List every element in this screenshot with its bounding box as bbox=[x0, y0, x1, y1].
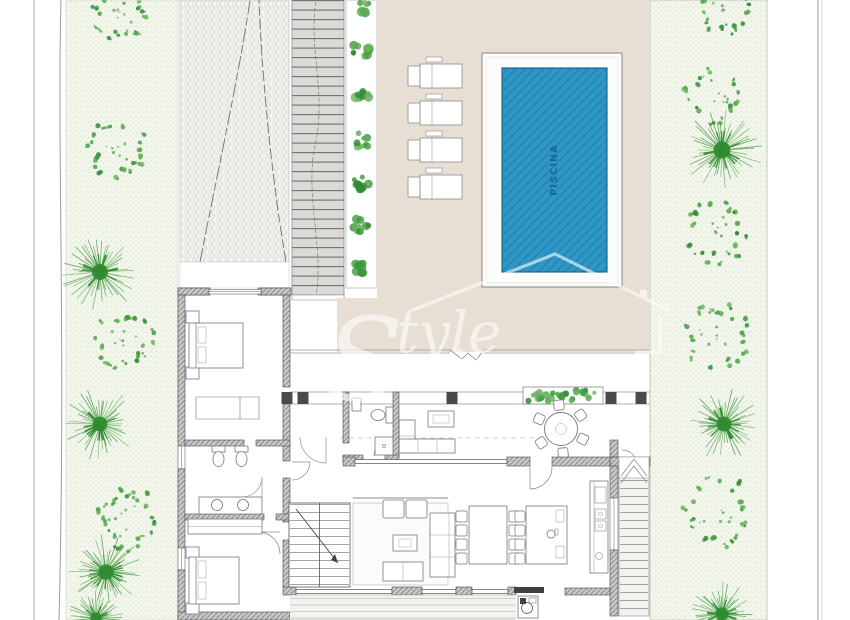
toilet bbox=[213, 452, 224, 467]
side-staircase bbox=[619, 457, 649, 616]
bar-stool bbox=[515, 511, 525, 522]
wing-east-wall-upper bbox=[283, 295, 290, 387]
wing-east-wall-mid1 bbox=[283, 404, 290, 461]
sofa bbox=[430, 513, 455, 577]
west-wall-upper bbox=[178, 295, 185, 446]
living-north-glass bbox=[355, 460, 507, 464]
shower bbox=[375, 437, 393, 455]
south-glass-2 bbox=[422, 590, 456, 594]
bbq-counter bbox=[514, 587, 544, 593]
west-wall-middle bbox=[178, 469, 185, 548]
nightstand bbox=[186, 547, 199, 558]
living-north-wall-right bbox=[552, 457, 610, 466]
double-bed bbox=[189, 323, 243, 368]
living-room bbox=[353, 498, 455, 585]
dining-chair bbox=[456, 539, 467, 550]
patio-chair bbox=[553, 400, 564, 411]
pool-label: PISCINA bbox=[549, 144, 560, 196]
dining-table bbox=[469, 506, 507, 564]
watermark-chimney bbox=[640, 290, 647, 297]
dining-area bbox=[456, 506, 520, 564]
south-pier1 bbox=[283, 587, 296, 595]
living-north-pier2 bbox=[507, 457, 530, 466]
porch-column bbox=[282, 392, 293, 404]
outdoor-dining-table bbox=[545, 413, 578, 446]
bath1-north-wall-right bbox=[256, 440, 290, 446]
bar-stool bbox=[515, 525, 525, 536]
east-wall-lower bbox=[610, 550, 618, 616]
planter-strip bbox=[346, 0, 377, 288]
porch-column bbox=[606, 392, 617, 404]
pool-area: PISCINA bbox=[482, 53, 622, 287]
bbq-burner bbox=[522, 603, 533, 614]
bedroom1-north-wall-right bbox=[261, 288, 291, 295]
dining-chair bbox=[456, 511, 467, 522]
bar-stool bbox=[515, 553, 525, 564]
vanity-counter bbox=[199, 497, 262, 514]
floor-plan-canvas: PISCINA bbox=[0, 0, 850, 620]
bath1-south-wall-right bbox=[276, 514, 290, 520]
bar-stool bbox=[515, 539, 525, 550]
watermark-subtitle: PROPERTIES bbox=[428, 357, 518, 367]
driveway bbox=[178, 0, 290, 295]
rear-deck bbox=[290, 595, 516, 620]
kitchen-island bbox=[526, 506, 567, 564]
double-bed bbox=[189, 557, 239, 604]
nightstand bbox=[186, 367, 199, 379]
driveway-apron bbox=[180, 262, 289, 288]
coffee-table bbox=[393, 535, 417, 551]
east-wall-upper bbox=[610, 466, 618, 498]
south-glass-1 bbox=[296, 590, 392, 594]
south-wall-seg2 bbox=[456, 587, 472, 595]
south-wall-right bbox=[565, 588, 610, 595]
left-garden-strip bbox=[62, 0, 178, 620]
armchair bbox=[383, 500, 404, 518]
nightstand bbox=[186, 603, 199, 614]
porch-column bbox=[636, 392, 647, 404]
stair-landing bbox=[619, 457, 649, 478]
dining-chair bbox=[456, 525, 467, 536]
bath1-north-wall bbox=[185, 440, 244, 446]
bedroom1-north-wall-left bbox=[178, 288, 209, 295]
front-walkway bbox=[292, 0, 344, 300]
interior-staircase bbox=[289, 503, 350, 587]
south-wall-seg1 bbox=[392, 587, 422, 595]
porch-column bbox=[298, 392, 309, 404]
outdoor-sofa-bottom bbox=[399, 439, 455, 453]
porch-column bbox=[447, 392, 458, 404]
dining-chair bbox=[456, 553, 467, 564]
armchair bbox=[406, 500, 427, 518]
site-plan-drawing: PISCINA bbox=[0, 0, 850, 620]
east-wall-top bbox=[610, 440, 618, 457]
living-north-pier1 bbox=[343, 457, 355, 466]
nightstand bbox=[186, 311, 199, 323]
bidet bbox=[236, 452, 247, 467]
outdoor-coffee-table bbox=[428, 411, 454, 427]
south-glass-3 bbox=[472, 590, 508, 594]
planter-bush bbox=[351, 260, 367, 277]
